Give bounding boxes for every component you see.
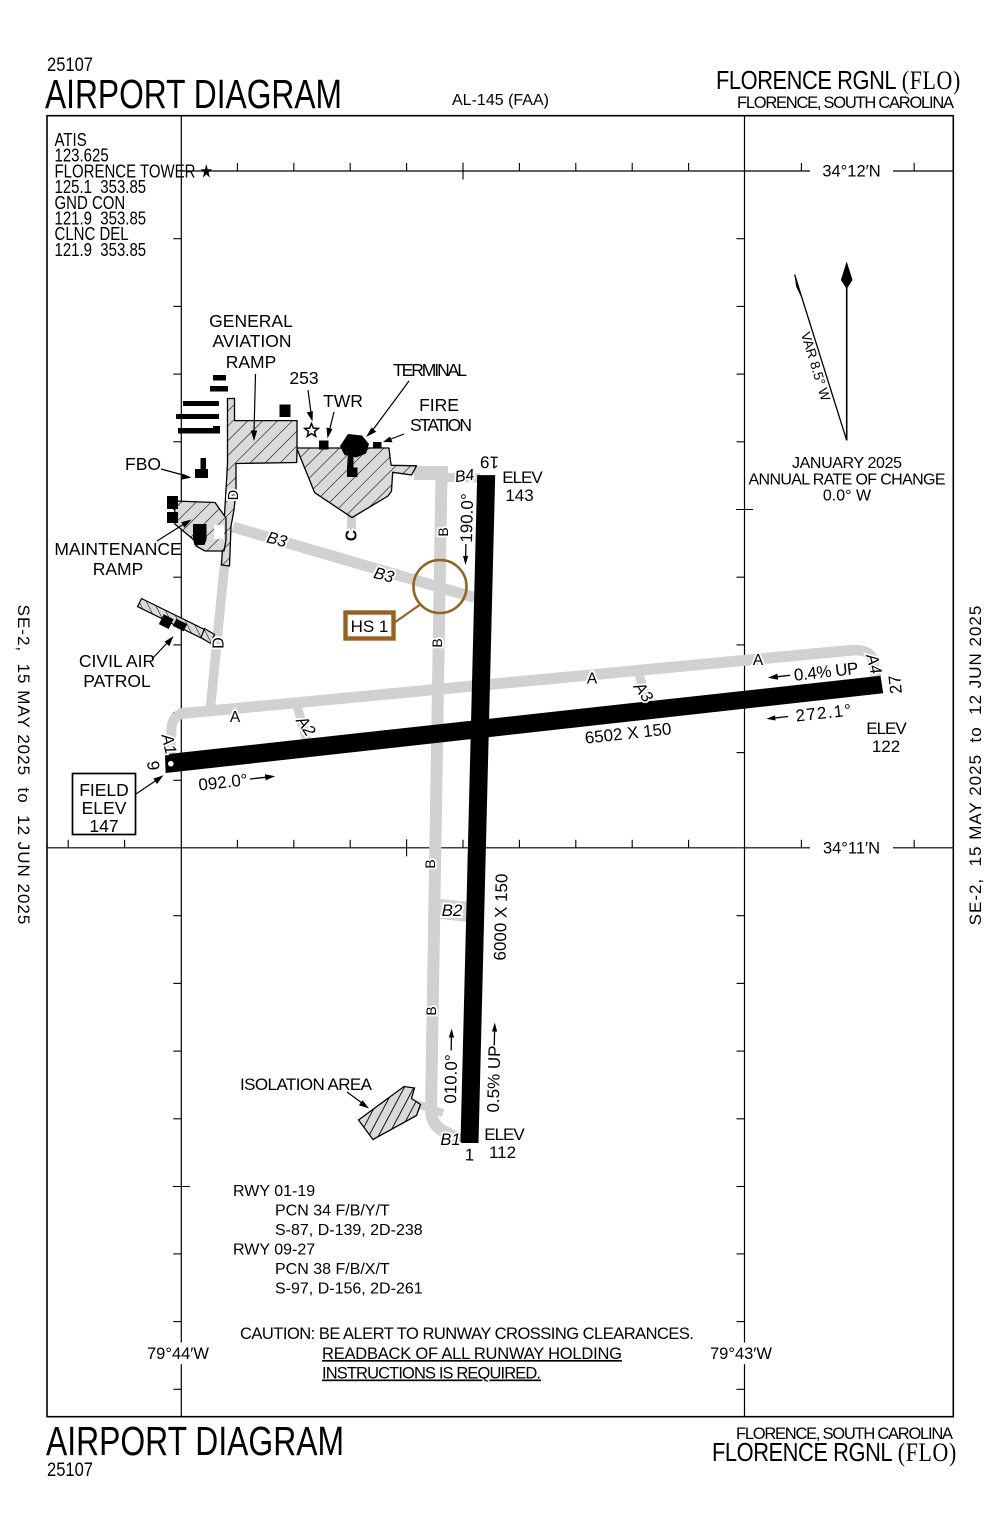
svg-text:READBACK OF ALL RUNWAY HOLDING: READBACK OF ALL RUNWAY HOLDING — [322, 1345, 622, 1363]
svg-text:A: A — [230, 709, 241, 726]
svg-text:B: B — [435, 527, 451, 536]
svg-text:19: 19 — [480, 452, 499, 471]
svg-text:C: C — [344, 530, 361, 541]
svg-text:FLORENCE, SOUTH CAROLINA: FLORENCE, SOUTH CAROLINA — [737, 94, 954, 112]
svg-text:B: B — [429, 638, 445, 647]
svg-text:CIVIL AIRPATROL: CIVIL AIRPATROL — [79, 651, 155, 691]
svg-text:FLORENCE RGNL (FLO): FLORENCE RGNL (FLO) — [716, 66, 961, 95]
svg-text:34°12′N: 34°12′N — [822, 163, 880, 181]
svg-text:FBO: FBO — [125, 454, 161, 474]
svg-text:25107: 25107 — [47, 1460, 93, 1481]
svg-text:TWR: TWR — [323, 391, 363, 411]
svg-text:A: A — [587, 671, 598, 688]
svg-text:ISOLATION AREA: ISOLATION AREA — [240, 1075, 373, 1094]
svg-text:TERMINAL: TERMINAL — [393, 360, 467, 380]
svg-text:6000 X 150: 6000 X 150 — [491, 873, 512, 960]
svg-text:253: 253 — [289, 368, 318, 388]
svg-text:B: B — [423, 1006, 439, 1015]
svg-text:D: D — [211, 637, 228, 649]
svg-text:AIRPORT DIAGRAM: AIRPORT DIAGRAM — [45, 71, 342, 117]
svg-text:SE-2, 15 MAY 2025 to 12 JUN: SE-2, 15 MAY 2025 to 12 JUN 2025 — [14, 605, 33, 926]
svg-text:HS 1: HS 1 — [351, 617, 389, 636]
svg-text:190.0°: 190.0° — [457, 493, 477, 543]
svg-text:AL-145 (FAA): AL-145 (FAA) — [452, 92, 549, 109]
svg-text:27: 27 — [885, 674, 906, 695]
svg-text:B1: B1 — [440, 1131, 460, 1149]
svg-text:0.5% UP: 0.5% UP — [484, 1045, 505, 1113]
svg-text:AIRPORT DIAGRAM: AIRPORT DIAGRAM — [46, 1418, 344, 1464]
svg-text:INSTRUCTIONS IS REQUIRED.: INSTRUCTIONS IS REQUIRED. — [322, 1365, 541, 1383]
svg-text:D: D — [226, 490, 242, 500]
svg-text:CAUTION: BE ALERT TO RUNWAY CR: CAUTION: BE ALERT TO RUNWAY CROSSING CLE… — [240, 1325, 694, 1343]
svg-text:010.0°: 010.0° — [441, 1054, 461, 1104]
svg-text:1: 1 — [465, 1145, 475, 1164]
svg-text:B2: B2 — [442, 901, 463, 920]
svg-text:FLORENCE RGNL (FLO): FLORENCE RGNL (FLO) — [712, 1438, 957, 1467]
svg-text:34°11′N: 34°11′N — [823, 839, 880, 857]
svg-text:B: B — [422, 859, 438, 868]
svg-text:79°44′W: 79°44′W — [147, 1345, 209, 1363]
svg-text:B4: B4 — [454, 467, 476, 487]
svg-text:SE-2, 15 MAY 2025 to 12 JUN: SE-2, 15 MAY 2025 to 12 JUN 2025 — [966, 605, 985, 926]
svg-text:79°43′W: 79°43′W — [710, 1345, 772, 1363]
svg-text:A: A — [753, 652, 764, 669]
